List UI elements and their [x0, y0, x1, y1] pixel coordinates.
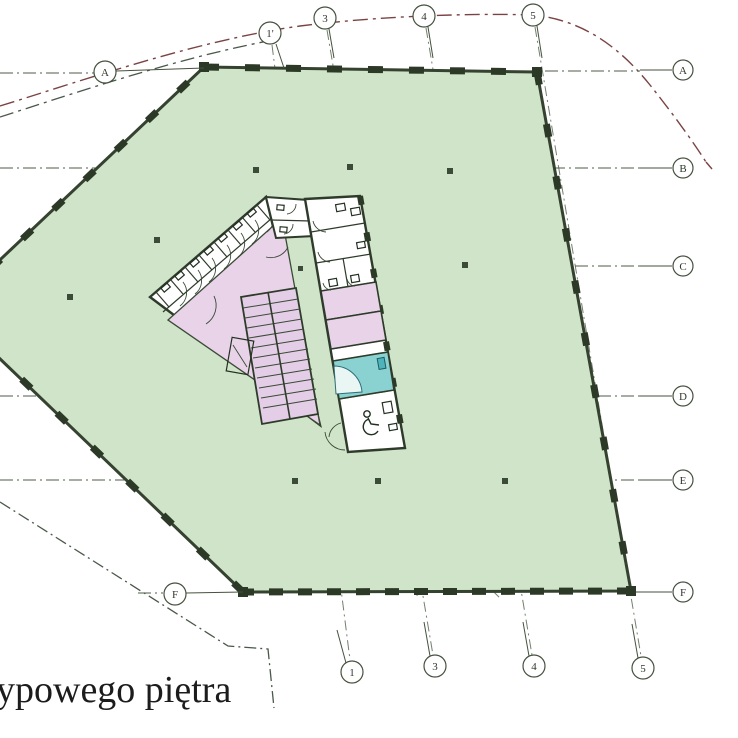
corner-column-northwest: [199, 62, 209, 72]
axis-marker-top-3: 3: [314, 7, 336, 29]
axis-marker-left-A: A: [94, 61, 116, 83]
svg-text:F: F: [172, 589, 178, 601]
svg-text:5: 5: [640, 663, 646, 675]
axis-marker-top-1p: 1': [259, 22, 281, 44]
floor-outline: [0, 67, 631, 592]
svg-text:3: 3: [432, 661, 438, 673]
building-floor-plate: [0, 62, 636, 597]
svg-text:A: A: [679, 65, 687, 77]
axis-marker-top-4: 4: [413, 5, 435, 27]
svg-text:4: 4: [421, 11, 427, 23]
svg-text:B: B: [679, 163, 686, 175]
axis-marker-left-F: F: [164, 583, 186, 605]
axis-marker-right-C: C: [673, 256, 693, 276]
axis-marker-bottom-1: 1: [341, 661, 363, 683]
axis-marker-right-F: F: [673, 582, 693, 602]
svg-text:E: E: [680, 475, 687, 487]
svg-text:3: 3: [322, 13, 328, 25]
axis-marker-right-A: A: [673, 60, 693, 80]
svg-text:A: A: [101, 67, 109, 79]
axis-marker-bottom-4: 4: [523, 655, 545, 677]
axis-marker-top-5: 5: [522, 4, 544, 26]
axis-marker-right-E: E: [673, 470, 693, 490]
svg-text:1': 1': [266, 28, 274, 40]
facade-columns-north: [204, 67, 537, 72]
floor-plan-page: 1' 3 4 5 1 3 4 5 A B C D E F A: [0, 0, 738, 738]
svg-text:C: C: [679, 261, 686, 273]
svg-text:F: F: [680, 587, 686, 599]
axis-marker-bottom-3: 3: [424, 655, 446, 677]
shower-fixture: [377, 357, 386, 369]
svg-text:5: 5: [530, 10, 536, 22]
svg-text:1: 1: [349, 667, 355, 679]
site-boundary-end-tick: [706, 162, 712, 169]
svg-text:D: D: [679, 391, 687, 403]
floor-plan-drawing: 1' 3 4 5 1 3 4 5 A B C D E F A: [0, 0, 738, 738]
axis-marker-bottom-5: 5: [632, 657, 654, 679]
corner-column-southeast: [626, 586, 636, 596]
axis-marker-right-B: B: [673, 158, 693, 178]
axis-marker-right-D: D: [673, 386, 693, 406]
svg-text:4: 4: [531, 661, 537, 673]
corner-column-northeast: [532, 67, 542, 77]
drawing-caption: ypowego piętra: [0, 669, 231, 711]
